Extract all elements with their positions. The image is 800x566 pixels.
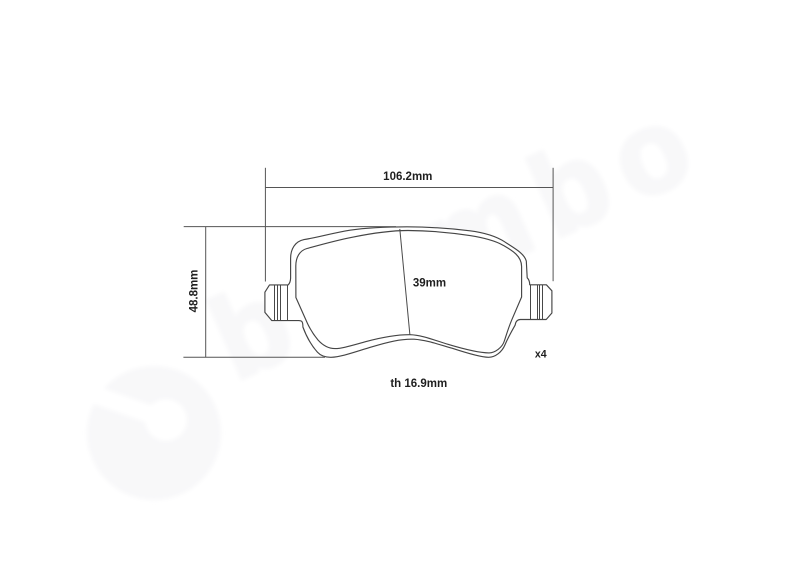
svg-text:x4: x4 [535, 348, 547, 360]
svg-text:106.2mm: 106.2mm [383, 171, 432, 183]
svg-text:48.8mm: 48.8mm [189, 270, 201, 313]
svg-text:th 16.9mm: th 16.9mm [390, 378, 447, 390]
svg-text:39mm: 39mm [413, 278, 446, 290]
